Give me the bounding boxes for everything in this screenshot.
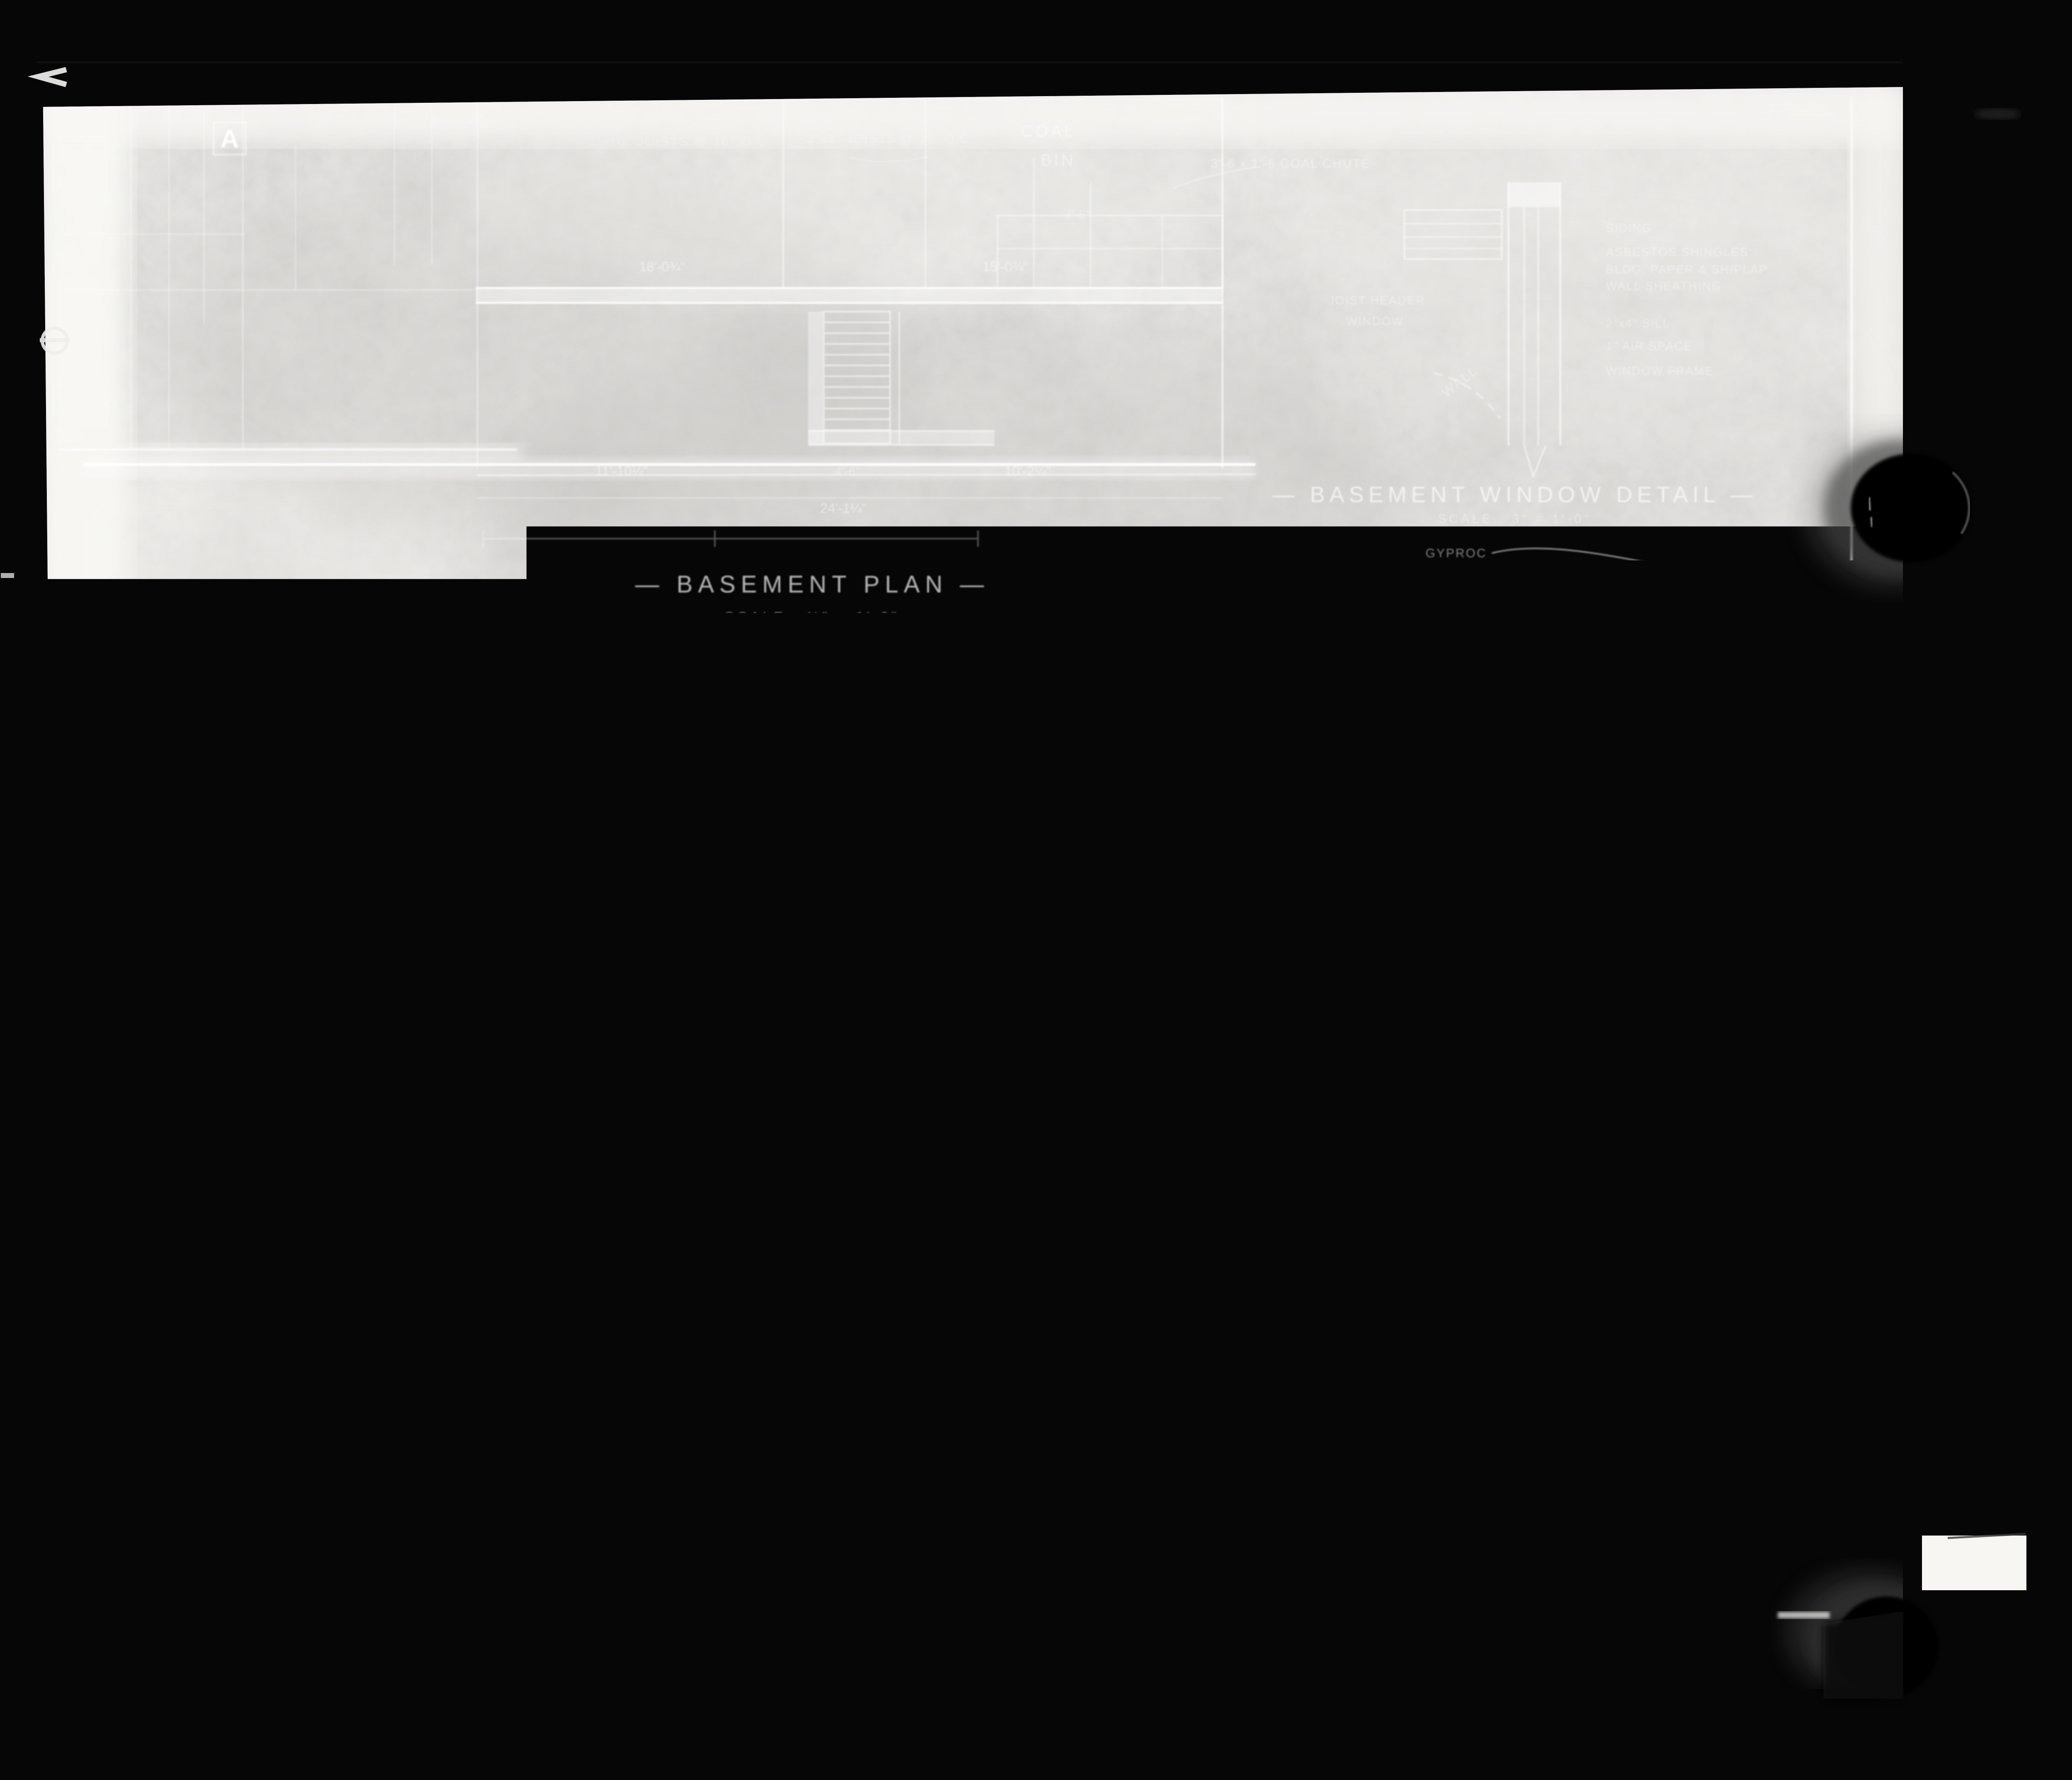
svg-text:SIDING: SIDING (1606, 222, 1652, 235)
svg-text:SHOP FOREMAN'S HOUSE AT FIELD: SHOP FOREMAN'S HOUSE AT FIELD (1242, 1349, 1824, 1377)
svg-text:B.C. DISTRICT ~ REVELSTOKE D: B.C. DISTRICT ~ REVELSTOKE DIV. (1276, 1303, 1791, 1327)
svg-text:DETAIL SUPPLIED: DETAIL SUPPLIED (1356, 884, 1459, 897)
svg-text:E: E (1334, 875, 1341, 888)
svg-text:1"x4" STRAPPING @ 16" O.C.: 1"x4" STRAPPING @ 16" O.C. (1450, 598, 1637, 611)
svg-text:SWITCH: SWITCH (428, 1332, 481, 1345)
svg-text:BY WINDOW MFR. 1 REQ'D.: BY WINDOW MFR. 1 REQ'D. (1508, 1011, 1665, 1023)
svg-text:B: B (1334, 793, 1341, 805)
svg-text:24 x 14 - 2 LTS.: 24 x 14 - 2 LTS. (1525, 1059, 1610, 1071)
svg-text:1: 1 (1335, 1002, 1342, 1014)
svg-text:2"x4" SILL: 2"x4" SILL (1606, 317, 1670, 330)
svg-text:WINDOW SCHEDULE: WINDOW SCHEDULE (1381, 936, 1717, 966)
svg-text:3'-0": 3'-0" (908, 1105, 932, 1118)
svg-text:1: 1 (1573, 875, 1580, 888)
svg-text:ASBESTOS SHINGLES: ASBESTOS SHINGLES (1606, 246, 1749, 259)
svg-text:—<CLOSET WALL DETAIL —: —<CLOSET WALL DETAIL — (1331, 625, 1752, 651)
svg-text:JULY 10th 1957.: JULY 10th 1957. (1237, 1548, 1433, 1570)
svg-text:2'-6": 2'-6" (792, 1105, 816, 1118)
svg-text:4" SPLASH: 4" SPLASH (537, 890, 604, 902)
svg-text:DOOR SCHEDULE: DOOR SCHEDULE (1411, 699, 1689, 728)
svg-text:DOUBLE HUNG: DOUBLE HUNG (1359, 1033, 1446, 1045)
svg-text:WALL SHEATHING: WALL SHEATHING (1606, 280, 1722, 293)
svg-text:GLASS SIZE: GLASS SIZE (1573, 975, 1663, 989)
svg-text:DOUBLE HUNG: DOUBLE HUNG (1359, 1080, 1440, 1091)
svg-text:MK: MK (1329, 975, 1351, 989)
svg-text:SCALE : 3" = 1'-0": SCALE : 3" = 1'-0" (298, 1076, 415, 1088)
svg-text:— KITCHEN CUPBOARDS —: — KITCHEN CUPBOARDS — (642, 1127, 1044, 1154)
svg-text:CEILING LINE: CEILING LINE (1003, 1089, 1086, 1101)
svg-text:— SILL DETAIL —: — SILL DETAIL — (201, 926, 353, 940)
svg-text:A: A (1334, 766, 1341, 778)
svg-text:— BASEBOARD DETAIL —: — BASEBOARD DETAIL — (244, 1057, 469, 1073)
svg-text:24 x 26 - 2 LTS.: 24 x 26 - 2 LTS. (1525, 1033, 1610, 1045)
svg-text:SYMBOLS: SYMBOLS (402, 1212, 580, 1236)
svg-text:C: C (1334, 820, 1342, 833)
svg-text:CEILING FIXTURE: CEILING FIXTURE (428, 1250, 546, 1263)
svg-text:SCALE : ½" = 1'-0": SCALE : ½" = 1'-0" (760, 1166, 931, 1180)
svg-text:NUMBER: NUMBER (1545, 738, 1609, 752)
svg-text:2: 2 (1573, 848, 1580, 860)
svg-text:5: 5 (1335, 1094, 1341, 1106)
svg-text:2'-8" x 6'-8" x 1⅜": 2'-8" x 6'-8" x 1⅜" (1649, 897, 1745, 910)
svg-text:FRONT DOOR AS PER: FRONT DOOR AS PER (1356, 871, 1481, 883)
svg-text:1: 1 (1573, 793, 1580, 805)
svg-text:FOUNDATION & GROUND FLOOR PLAN: FOUNDATION & GROUND FLOOR PLAN (1236, 1395, 1831, 1420)
svg-text:HOLLOW CORE FLUSH: HOLLOW CORE FLUSH (1356, 820, 1487, 833)
svg-text:CANADIAN PACIFIC RAILWAY: CANADIAN PACIFIC RAILWAY (1240, 1261, 1822, 1296)
svg-text:10: 10 (1571, 766, 1584, 778)
svg-text:2'-8" x 6'-8" x 1⅜": 2'-8" x 6'-8" x 1⅜" (1649, 766, 1745, 778)
svg-text:1" AIR SPACE: 1" AIR SPACE (1606, 340, 1692, 353)
svg-text:D: D (1334, 848, 1342, 860)
svg-text:SELECT WINDOW: SELECT WINDOW (1359, 1002, 1460, 1014)
svg-text:LATER: LATER (1356, 897, 1393, 910)
svg-text:4: 4 (1335, 1080, 1341, 1091)
svg-text:CROSS SECTION & DETAILS: CROSS SECTION & DETAILS (1354, 1426, 1701, 1448)
svg-text:7'-6" CEILING: 7'-6" CEILING (666, 669, 760, 682)
svg-text:TYPE: TYPE (1413, 738, 1452, 752)
svg-text:SCALE : ¼" = 1'-0": SCALE : ¼" = 1'-0" (725, 609, 900, 624)
svg-text:10'-2¼": 10'-2¼" (1005, 463, 1051, 479)
svg-text:CLOSET LINING: CLOSET LINING (1436, 583, 1538, 596)
svg-text:2"x8" JOISTS @ 16" O.C.: 2"x8" JOISTS @ 16" O.C. (808, 131, 974, 146)
svg-text:MK: MK (1329, 738, 1351, 752)
svg-text:10: 10 (1571, 820, 1584, 833)
svg-text:3'-6 x 1'-6 COAL CHUTE: 3'-6 x 1'-6 COAL CHUTE (1211, 156, 1370, 171)
svg-text:SHELVES: SHELVES (1137, 1018, 1194, 1030)
svg-text:GYPROC: GYPROC (1426, 547, 1487, 560)
svg-text:2: 2 (1335, 1033, 1342, 1045)
svg-text:HOLLOW CORE FLUSH: HOLLOW CORE FLUSH (1356, 793, 1487, 805)
svg-text:3'-0": 3'-0" (520, 1105, 544, 1118)
svg-text:SCALE : 6" = 1'-0": SCALE : 6" = 1'-0" (1457, 650, 1610, 663)
svg-text:SCALE : 3" = 1'-0": SCALE : 3" = 1'-0" (1438, 512, 1592, 526)
svg-text:3'-0" x 6'-8" x 1¾": 3'-0" x 6'-8" x 1¾" (1649, 875, 1745, 888)
svg-text:24'-1¼": 24'-1¼" (820, 501, 867, 516)
svg-text:DOUBLE HUNG: DOUBLE HUNG (1359, 1059, 1446, 1071)
svg-text:BASEMENT SASH: BASEMENT SASH (1359, 1094, 1452, 1106)
svg-text:BIN: BIN (1041, 151, 1076, 169)
svg-text:SCALES AS NOTED ~ SHEET 1 OF: SCALES AS NOTED ~ SHEET 1 OF 2 (1299, 1456, 1743, 1474)
svg-text:CONVENIENCE OUTLET: CONVENIENCE OUTLET (428, 1305, 584, 1318)
svg-text:2'-6": 2'-6" (637, 1105, 661, 1118)
svg-text:— BASEMENT PLAN —: — BASEMENT PLAN — (635, 571, 990, 598)
svg-text:BLDG. PAPER & SHIPLAP: BLDG. PAPER & SHIPLAP (1606, 263, 1768, 276)
svg-text:15'-0¾": 15'-0¾" (982, 259, 1029, 274)
svg-text:7'-6": 7'-6" (1065, 207, 1090, 222)
svg-text:3: 3 (1335, 1059, 1342, 1071)
svg-text:— BASEMENT WINDOW DETAIL —: — BASEMENT WINDOW DETAIL — (1272, 482, 1757, 507)
svg-text:(ALL AROUND): (ALL AROUND) (675, 685, 763, 698)
svg-text:16 x 20 - 3 LTS. REQ'D.: 16 x 20 - 3 LTS. REQ'D. (1508, 1094, 1629, 1106)
svg-text:WINDOW: WINDOW (1346, 315, 1404, 328)
svg-text:A: A (220, 125, 239, 153)
svg-text:2"x10" JOISTS @ 16" O.C.: 2"x10" JOISTS @ 16" O.C. (588, 134, 772, 149)
svg-text:2'-6" x 6'-8" x 1⅜": 2'-6" x 6'-8" x 1⅜" (1649, 793, 1745, 805)
svg-text:REVELSTOKE, B.C.: REVELSTOKE, B.C. (1237, 1497, 1478, 1519)
svg-text:18'-0¾": 18'-0¾" (639, 259, 685, 274)
svg-text:WALL FIXTURE: WALL FIXTURE (428, 1277, 526, 1290)
svg-text:HOLLOW CORE FLUSH: HOLLOW CORE FLUSH (1356, 766, 1487, 778)
svg-text:AS PER CUT SUPPLIED: AS PER CUT SUPPLIED (1508, 997, 1642, 1009)
svg-text:TYPE: TYPE (1398, 975, 1437, 989)
svg-text:COAL: COAL (1021, 122, 1076, 140)
svg-text:WINDOW FRAME: WINDOW FRAME (1606, 365, 1714, 378)
svg-text:SLIDING FLUSH: SLIDING FLUSH (1356, 848, 1446, 860)
svg-text:SIZE: SIZE (1694, 738, 1728, 752)
svg-text:20 x 12 - 2 LTS.: 20 x 12 - 2 LTS. (1525, 1080, 1605, 1091)
svg-text:4'-6": 4'-6" (835, 464, 860, 479)
svg-text:2'-2¼": 2'-2¼" (1094, 1105, 1128, 1118)
svg-text:11'-10¼": 11'-10¼" (595, 463, 648, 479)
svg-text:— MAIN CORNICE DETAIL —: — MAIN CORNICE DETAIL — (167, 825, 413, 839)
svg-text:SEP 1 6 1957: SEP 1 6 1957 (1625, 1168, 1749, 1187)
svg-text:2'-4" x 6'-8" x 1⅜": 2'-4" x 6'-8" x 1⅜" (1649, 820, 1745, 833)
svg-text:DIVISION ENGINEER: DIVISION ENGINEER (1548, 1555, 1815, 1574)
svg-text:JOIST HEADER: JOIST HEADER (1328, 294, 1426, 307)
svg-text:4'-0" x 6'-8" x 1⅛": 4'-0" x 6'-8" x 1⅛" (1649, 848, 1745, 860)
svg-text:AUG. 14th 1957: AUG. 14th 1957 (1239, 1525, 1404, 1543)
